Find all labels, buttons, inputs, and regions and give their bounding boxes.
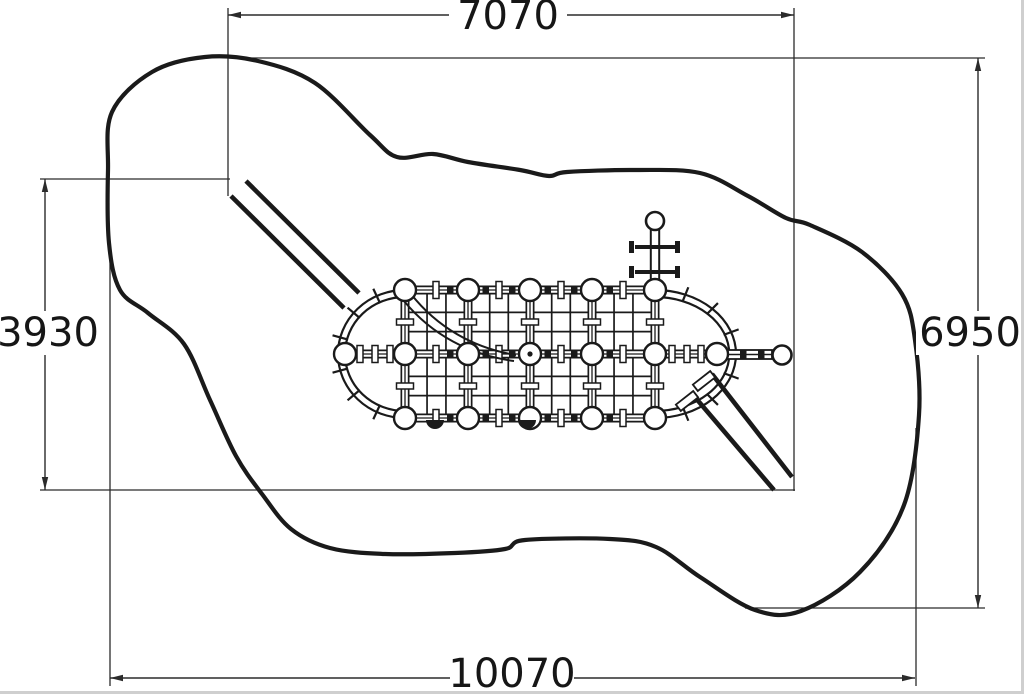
dimension-label-top: 7070	[449, 0, 567, 38]
plan-drawing	[0, 0, 1024, 694]
dimension-label-left: 3930	[0, 311, 98, 355]
dimension-lines	[42, 12, 981, 681]
safety-zone-outline	[107, 56, 919, 615]
climbing-net-structure	[333, 212, 792, 427]
zipline-track	[231, 181, 792, 490]
dimension-label-right: 6950	[916, 311, 1024, 355]
dimension-label-bottom: 10070	[450, 653, 574, 694]
playground-plan-diagram: 7070 10070 3930 6950	[0, 0, 1024, 694]
